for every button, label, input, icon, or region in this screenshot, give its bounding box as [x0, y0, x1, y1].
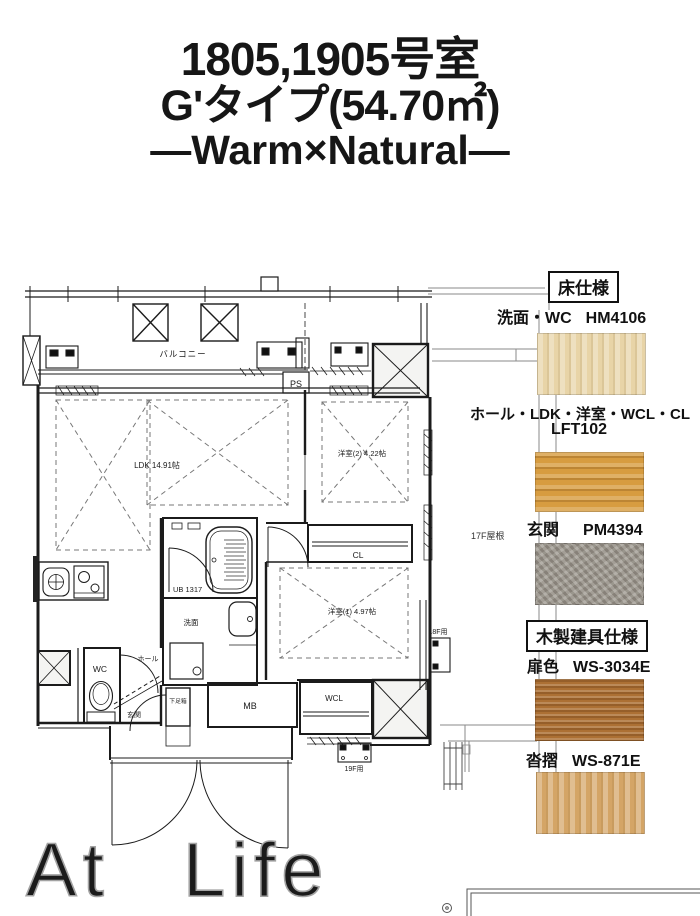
floor-spec-item-3-label: 玄関PM4394	[527, 516, 643, 540]
wc-label: WC	[93, 664, 107, 674]
swatch-hm4106	[537, 333, 646, 395]
balcony-label: バルコニー	[159, 349, 206, 359]
washroom-label: 洗面	[184, 617, 199, 627]
for-18f-label: 18F用	[428, 628, 447, 636]
balcony-area	[23, 277, 432, 397]
fixture-spec-item-1-label: 扉色WS-3034E	[527, 653, 650, 677]
hall-label: ホール	[138, 655, 159, 663]
room-area-marks	[56, 400, 408, 658]
fixture-spec-item-1-code: WS-3034E	[573, 659, 650, 676]
roof-17f-note: 17F屋根	[471, 529, 505, 542]
closet-label: CL	[353, 550, 364, 560]
bath-washroom	[163, 518, 257, 685]
floor-plan-sheet: バルコニー PS LDK 14.91帖 洋室(2) 4.22帖 洋室(1) 4.…	[0, 0, 700, 916]
fixture-spec-item-2-areas: 沓摺	[526, 753, 558, 770]
fixture-spec-item-2-code: WS-871E	[572, 753, 640, 770]
swatch-ws871e	[536, 772, 645, 834]
floor-spec-item-3-areas: 玄関	[527, 522, 559, 539]
swatch-pm4394	[535, 543, 644, 605]
fixture-spec-heading: 木製建具仕様	[526, 620, 648, 652]
swatch-lft102	[535, 452, 644, 512]
fixture-spec-item-2-label: 沓摺WS-871E	[526, 747, 640, 771]
watermark-word-2: Life	[183, 828, 330, 913]
type-title: G'タイプ(54.70㎡)	[60, 84, 600, 129]
ps-label: PS	[290, 379, 302, 389]
for-19f-label: 19F用	[344, 765, 363, 773]
watermark-word-1: At	[26, 828, 110, 913]
meter-box-label: MB	[243, 701, 257, 711]
western-room-1-label: 洋室(1) 4.97帖	[328, 606, 377, 616]
shoe-cabinet-label: 下足箱	[169, 697, 187, 705]
unit-bath-label: UB 1317	[173, 585, 202, 594]
fixture-spec-item-1-areas: 扉色	[527, 659, 559, 676]
swatch-ws3034e	[535, 679, 644, 741]
room-numbers-title: 1805,1905号室	[60, 36, 600, 84]
floor-spec-item-3-code: PM4394	[583, 522, 643, 539]
floor-spec-item-1-areas: 洗面・WC	[497, 310, 572, 327]
ldk-label: LDK 14.91帖	[134, 460, 180, 470]
floor-spec-heading: 床仕様	[548, 271, 619, 303]
floor-spec-item-2-code: LFT102	[470, 421, 688, 439]
title-block: 1805,1905号室 G'タイプ(54.70㎡) ―Warm×Natural―	[60, 36, 600, 171]
entrance-label: 玄関	[127, 710, 141, 719]
floor-spec-item-1-label: 洗面・WCHM4106	[497, 304, 646, 328]
watermark: At Life	[26, 828, 330, 913]
wc-hall-entrance	[38, 648, 190, 746]
mb-wcl	[208, 600, 450, 762]
western-room-2-label: 洋室(2) 4.22帖	[338, 448, 387, 458]
theme-title: ―Warm×Natural―	[60, 129, 600, 172]
adjacent-sheet-fragment	[443, 889, 700, 916]
kitchen	[33, 556, 108, 602]
floor-spec-item-1-code: HM4106	[586, 310, 646, 327]
walk-in-closet-label: WCL	[325, 694, 343, 703]
interior-walls	[161, 390, 373, 726]
